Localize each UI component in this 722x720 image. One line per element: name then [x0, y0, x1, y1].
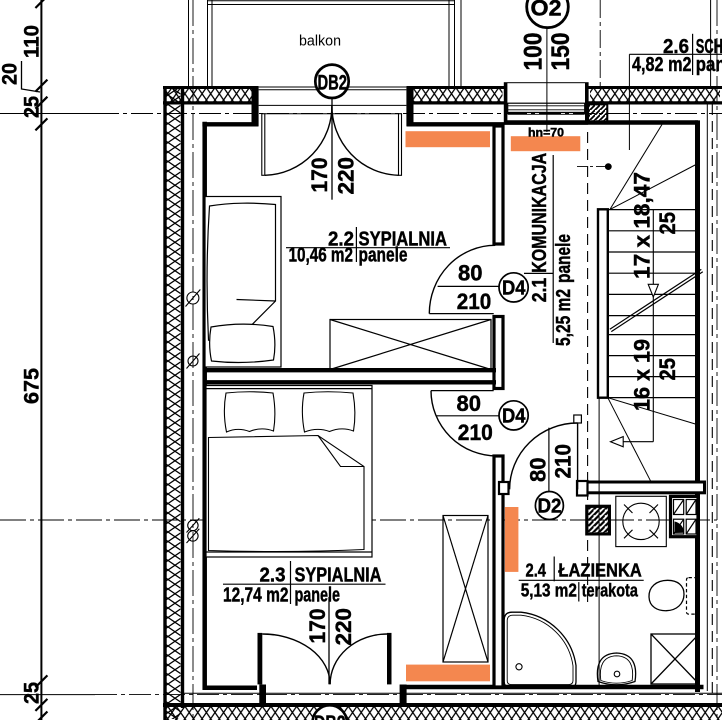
svg-text:panele: panele: [553, 234, 575, 283]
svg-text:20: 20: [0, 63, 22, 85]
svg-text:210: 210: [551, 444, 576, 479]
svg-text:balkon: balkon: [299, 34, 341, 50]
svg-text:675: 675: [21, 368, 44, 404]
svg-text:220: 220: [331, 608, 356, 646]
svg-text:DB2: DB2: [318, 71, 348, 94]
svg-text:5,13 m2: 5,13 m2: [521, 580, 577, 601]
svg-text:16 x 19: 16 x 19: [630, 339, 655, 411]
svg-text:220: 220: [334, 157, 359, 195]
svg-text:4,82 m2: 4,82 m2: [632, 54, 692, 76]
svg-text:25: 25: [21, 682, 44, 704]
svg-text:80: 80: [526, 458, 551, 483]
svg-text:17 x 18,47: 17 x 18,47: [630, 172, 655, 279]
svg-text:panele: panele: [696, 54, 722, 76]
svg-text:DB2: DB2: [314, 712, 346, 720]
svg-text:170: 170: [307, 158, 332, 193]
svg-text:150: 150: [547, 33, 575, 71]
svg-text:25: 25: [655, 358, 680, 381]
svg-text:SYPIALNIA: SYPIALNIA: [295, 565, 382, 587]
svg-text:25: 25: [655, 212, 680, 235]
svg-text:terakota: terakota: [582, 580, 639, 601]
svg-text:panele: panele: [359, 245, 408, 267]
svg-text:170: 170: [305, 609, 330, 644]
svg-text:KOMUNIKACJA: KOMUNIKACJA: [529, 153, 551, 273]
svg-text:ŁAZIENKA: ŁAZIENKA: [558, 560, 641, 581]
svg-text:25: 25: [21, 96, 44, 118]
svg-text:panele: panele: [295, 585, 341, 607]
svg-text:hn=70: hn=70: [528, 128, 564, 140]
svg-text:5,25 m2: 5,25 m2: [553, 289, 575, 346]
svg-text:D2: D2: [538, 496, 562, 518]
svg-text:D4: D4: [502, 406, 526, 428]
svg-text:110: 110: [21, 25, 44, 58]
svg-text:2.4: 2.4: [526, 560, 547, 581]
svg-text:10,46 m2: 10,46 m2: [289, 245, 354, 267]
svg-text:2.1: 2.1: [529, 278, 551, 303]
svg-text:2.3: 2.3: [260, 565, 286, 587]
svg-text:210: 210: [457, 289, 492, 314]
svg-text:80: 80: [458, 261, 483, 286]
svg-text:100: 100: [520, 33, 548, 71]
svg-text:O2: O2: [531, 0, 562, 21]
svg-text:210: 210: [458, 420, 493, 445]
svg-text:D4: D4: [502, 278, 526, 300]
svg-text:80: 80: [457, 391, 482, 416]
svg-text:12,74 m2: 12,74 m2: [223, 585, 289, 607]
